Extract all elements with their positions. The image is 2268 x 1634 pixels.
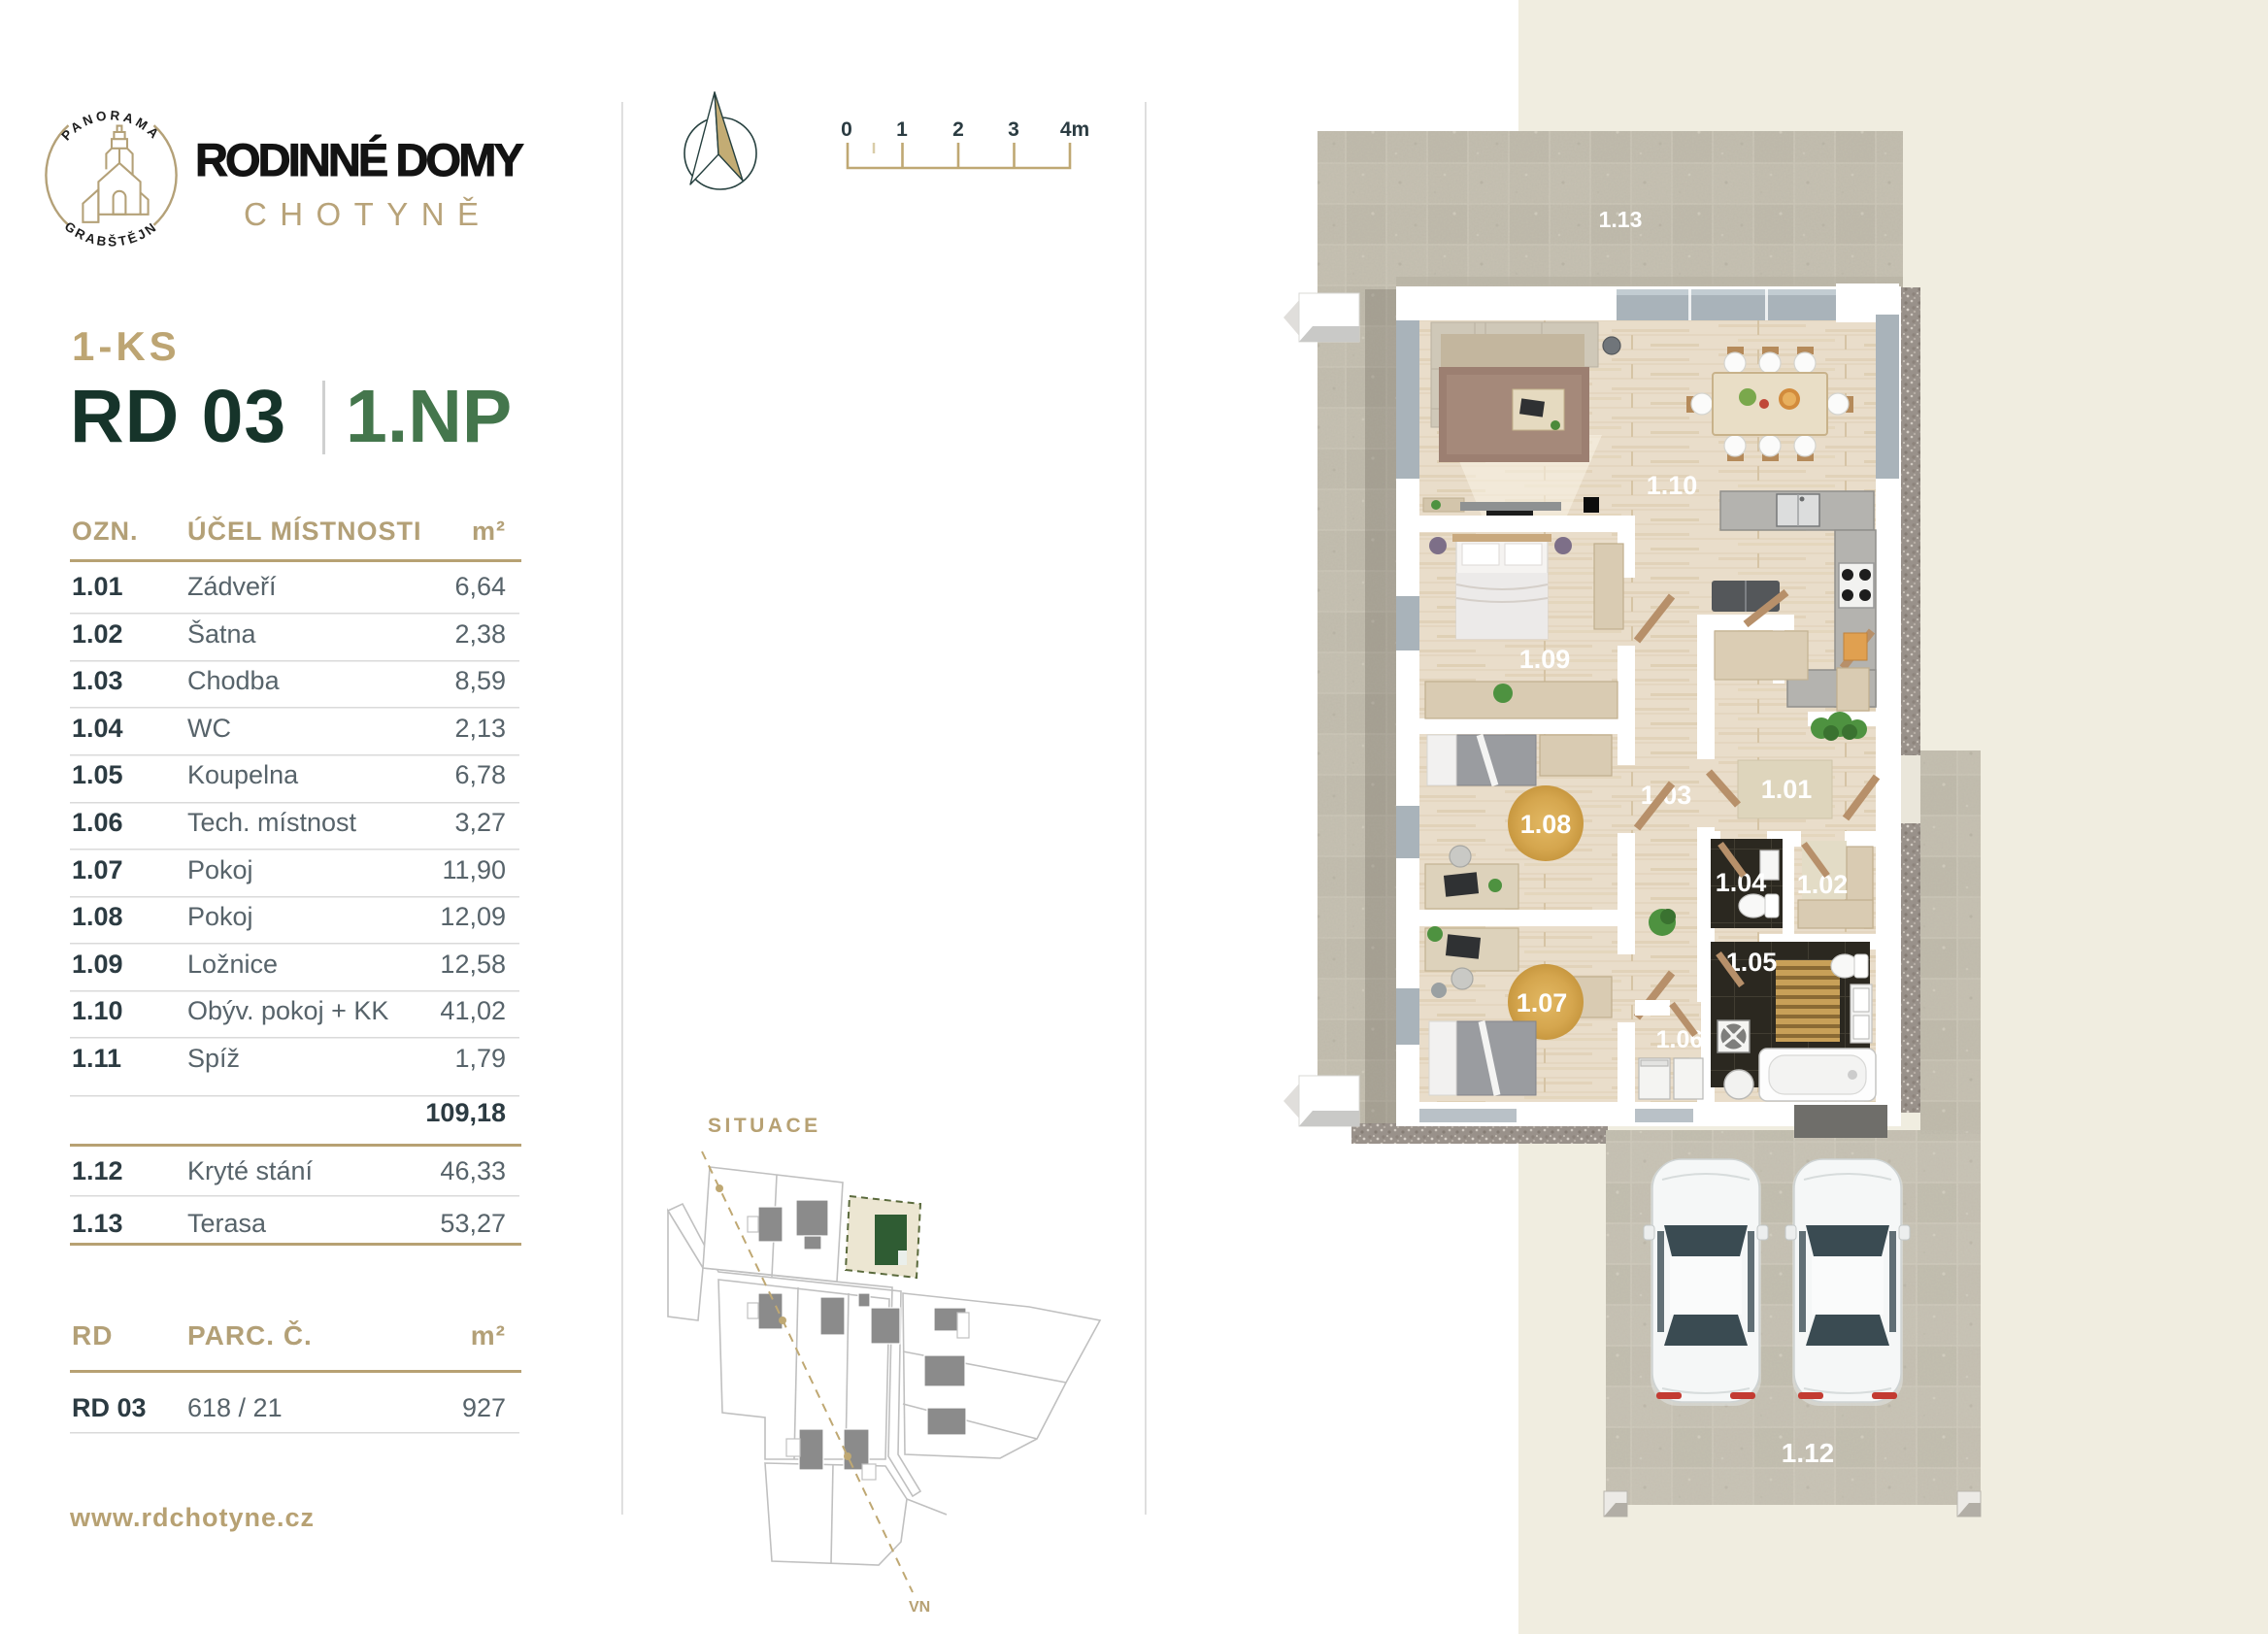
- svg-text:0: 0: [841, 118, 852, 141]
- svg-text:Ložnice: Ložnice: [187, 950, 278, 979]
- svg-text:12,58: 12,58: [440, 950, 506, 979]
- svg-text:Spíž: Spíž: [187, 1044, 240, 1073]
- svg-text:1.NP: 1.NP: [346, 375, 512, 458]
- svg-text:RD 03: RD 03: [72, 1393, 147, 1422]
- svg-text:1.07: 1.07: [1517, 988, 1568, 1017]
- svg-text:Šatna: Šatna: [187, 618, 257, 649]
- svg-text:1.06: 1.06: [1656, 1026, 1704, 1053]
- svg-text:1.01: 1.01: [1761, 775, 1813, 804]
- svg-text:1: 1: [896, 118, 908, 141]
- svg-text:1.05: 1.05: [72, 760, 123, 789]
- svg-text:RODINNÉ DOMY: RODINNÉ DOMY: [195, 134, 526, 185]
- svg-text:41,02: 41,02: [440, 996, 506, 1025]
- svg-text:1,79: 1,79: [454, 1044, 506, 1073]
- svg-text:CHOTYNĚ: CHOTYNĚ: [244, 196, 492, 232]
- svg-text:3,27: 3,27: [454, 808, 506, 837]
- svg-text:1.08: 1.08: [1520, 810, 1572, 839]
- svg-text:1.03: 1.03: [72, 666, 123, 695]
- svg-text:m²: m²: [471, 1320, 506, 1351]
- svg-text:Pokoj: Pokoj: [187, 902, 253, 931]
- svg-text:1.09: 1.09: [1519, 645, 1571, 674]
- svg-text:m²: m²: [472, 517, 506, 546]
- svg-text:53,27: 53,27: [440, 1209, 506, 1238]
- svg-text:Koupelna: Koupelna: [187, 760, 299, 789]
- svg-text:46,33: 46,33: [440, 1156, 506, 1185]
- svg-text:Obýv. pokoj + KK: Obýv. pokoj + KK: [187, 996, 388, 1025]
- svg-text:4m: 4m: [1060, 118, 1089, 141]
- svg-text:PARC. Č.: PARC. Č.: [187, 1319, 313, 1351]
- svg-text:SITUACE: SITUACE: [708, 1115, 821, 1137]
- svg-text:1.12: 1.12: [72, 1156, 123, 1185]
- svg-text:1.04: 1.04: [72, 714, 123, 743]
- svg-text:1.10: 1.10: [72, 996, 123, 1025]
- svg-text:Zádveří: Zádveří: [187, 572, 277, 601]
- svg-text:WC: WC: [187, 714, 231, 743]
- svg-text:1.12: 1.12: [1782, 1438, 1835, 1468]
- svg-text:Kryté stání: Kryté stání: [187, 1156, 314, 1185]
- svg-text:2: 2: [952, 118, 964, 141]
- svg-text:VN: VN: [909, 1599, 930, 1616]
- svg-text:1.13: 1.13: [1599, 207, 1643, 232]
- svg-text:12,09: 12,09: [440, 902, 506, 931]
- svg-text:OZN.: OZN.: [72, 517, 139, 546]
- svg-text:RD: RD: [72, 1320, 113, 1351]
- svg-text:www.rdchotyne.cz: www.rdchotyne.cz: [69, 1503, 315, 1532]
- svg-text:Terasa: Terasa: [187, 1209, 267, 1238]
- svg-text:1.01: 1.01: [72, 572, 123, 601]
- svg-text:1-KS: 1-KS: [72, 323, 181, 369]
- svg-text:Pokoj: Pokoj: [187, 855, 253, 884]
- svg-text:6,78: 6,78: [454, 760, 506, 789]
- svg-text:2,38: 2,38: [454, 619, 506, 649]
- svg-text:618 / 21: 618 / 21: [187, 1393, 283, 1422]
- svg-text:1.11: 1.11: [72, 1044, 121, 1073]
- svg-text:11,90: 11,90: [442, 855, 506, 884]
- svg-text:1.08: 1.08: [72, 902, 123, 931]
- svg-text:RD 03: RD 03: [70, 375, 286, 458]
- svg-text:1.09: 1.09: [72, 950, 123, 979]
- svg-text:1.06: 1.06: [72, 808, 123, 837]
- svg-text:3: 3: [1008, 118, 1019, 141]
- svg-text:Tech. místnost: Tech. místnost: [187, 808, 357, 837]
- svg-text:109,18: 109,18: [425, 1098, 506, 1127]
- svg-text:1.07: 1.07: [72, 855, 123, 884]
- svg-text:Chodba: Chodba: [187, 666, 281, 695]
- svg-text:6,64: 6,64: [454, 572, 506, 601]
- svg-text:927: 927: [462, 1393, 506, 1422]
- svg-text:1.13: 1.13: [72, 1209, 123, 1238]
- svg-text:8,59: 8,59: [454, 666, 506, 695]
- svg-text:ÚČEL MÍSTNOSTI: ÚČEL MÍSTNOSTI: [187, 516, 422, 546]
- svg-text:2,13: 2,13: [454, 714, 506, 743]
- svg-text:1.02: 1.02: [72, 619, 123, 649]
- svg-text:1.10: 1.10: [1647, 471, 1698, 500]
